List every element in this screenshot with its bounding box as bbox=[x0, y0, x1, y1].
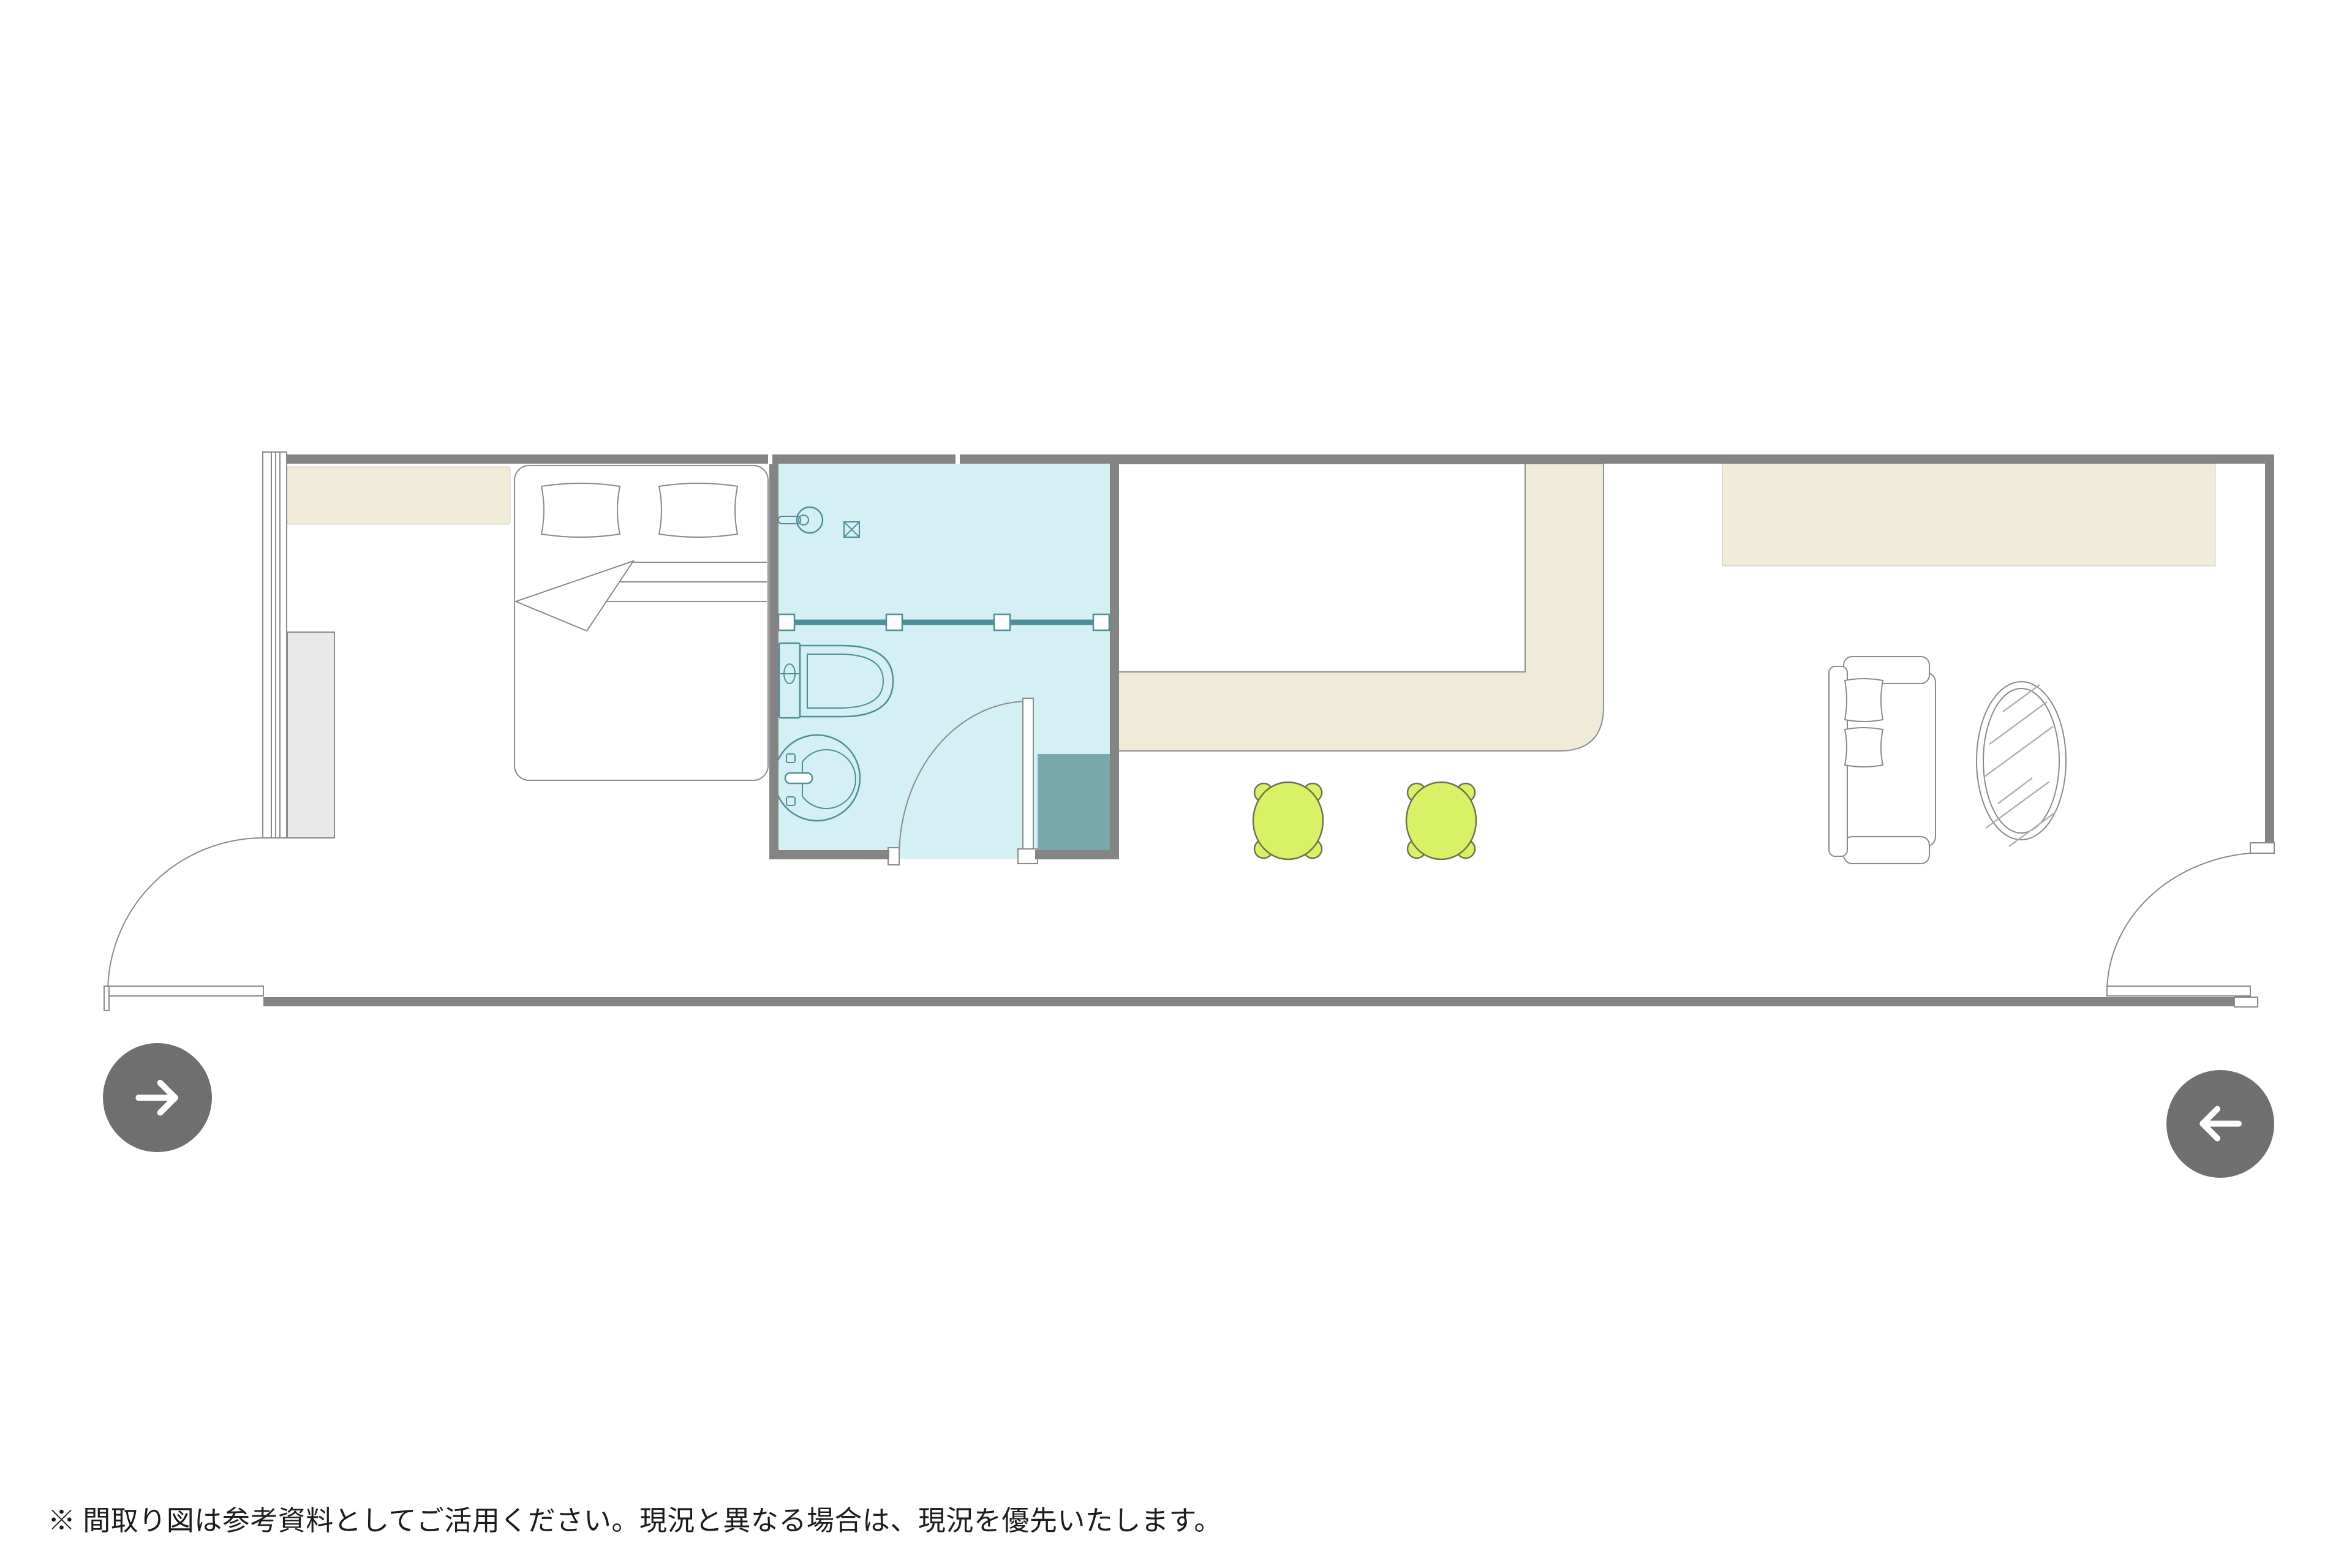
window bbox=[263, 452, 287, 838]
entry-door-left bbox=[104, 838, 263, 1011]
stool bbox=[1406, 782, 1476, 859]
stool bbox=[1253, 782, 1323, 859]
left-arrow-icon bbox=[2187, 1090, 2253, 1157]
disclaimer-note: ※ 間取り図は参考資料としてご活用ください。現況と異なる場合は、現況を優先いたし… bbox=[48, 1498, 1222, 1538]
page-forward-button[interactable] bbox=[103, 1043, 212, 1152]
double-bed bbox=[514, 466, 768, 780]
pillow bbox=[659, 483, 737, 537]
living-wall-shelf bbox=[1722, 464, 2215, 566]
bedroom-counter-shelf bbox=[287, 467, 510, 524]
sofa bbox=[1829, 657, 1936, 864]
oval-mirror bbox=[1977, 682, 2066, 846]
right-arrow-icon bbox=[124, 1064, 191, 1131]
closet bbox=[287, 632, 334, 838]
entry-door-right bbox=[2107, 843, 2274, 1007]
sofa-pillow bbox=[1845, 679, 1883, 722]
kitchen-counter-core bbox=[1118, 464, 1525, 672]
floor-plan bbox=[0, 0, 2352, 1568]
page-back-button[interactable] bbox=[2166, 1070, 2274, 1178]
floor-plan-page: ※ 間取り図は参考資料としてご活用ください。現況と異なる場合は、現況を優先いたし… bbox=[0, 0, 2352, 1568]
pillow bbox=[541, 483, 620, 537]
sofa-pillow bbox=[1845, 728, 1883, 767]
utility-block bbox=[1038, 754, 1119, 850]
